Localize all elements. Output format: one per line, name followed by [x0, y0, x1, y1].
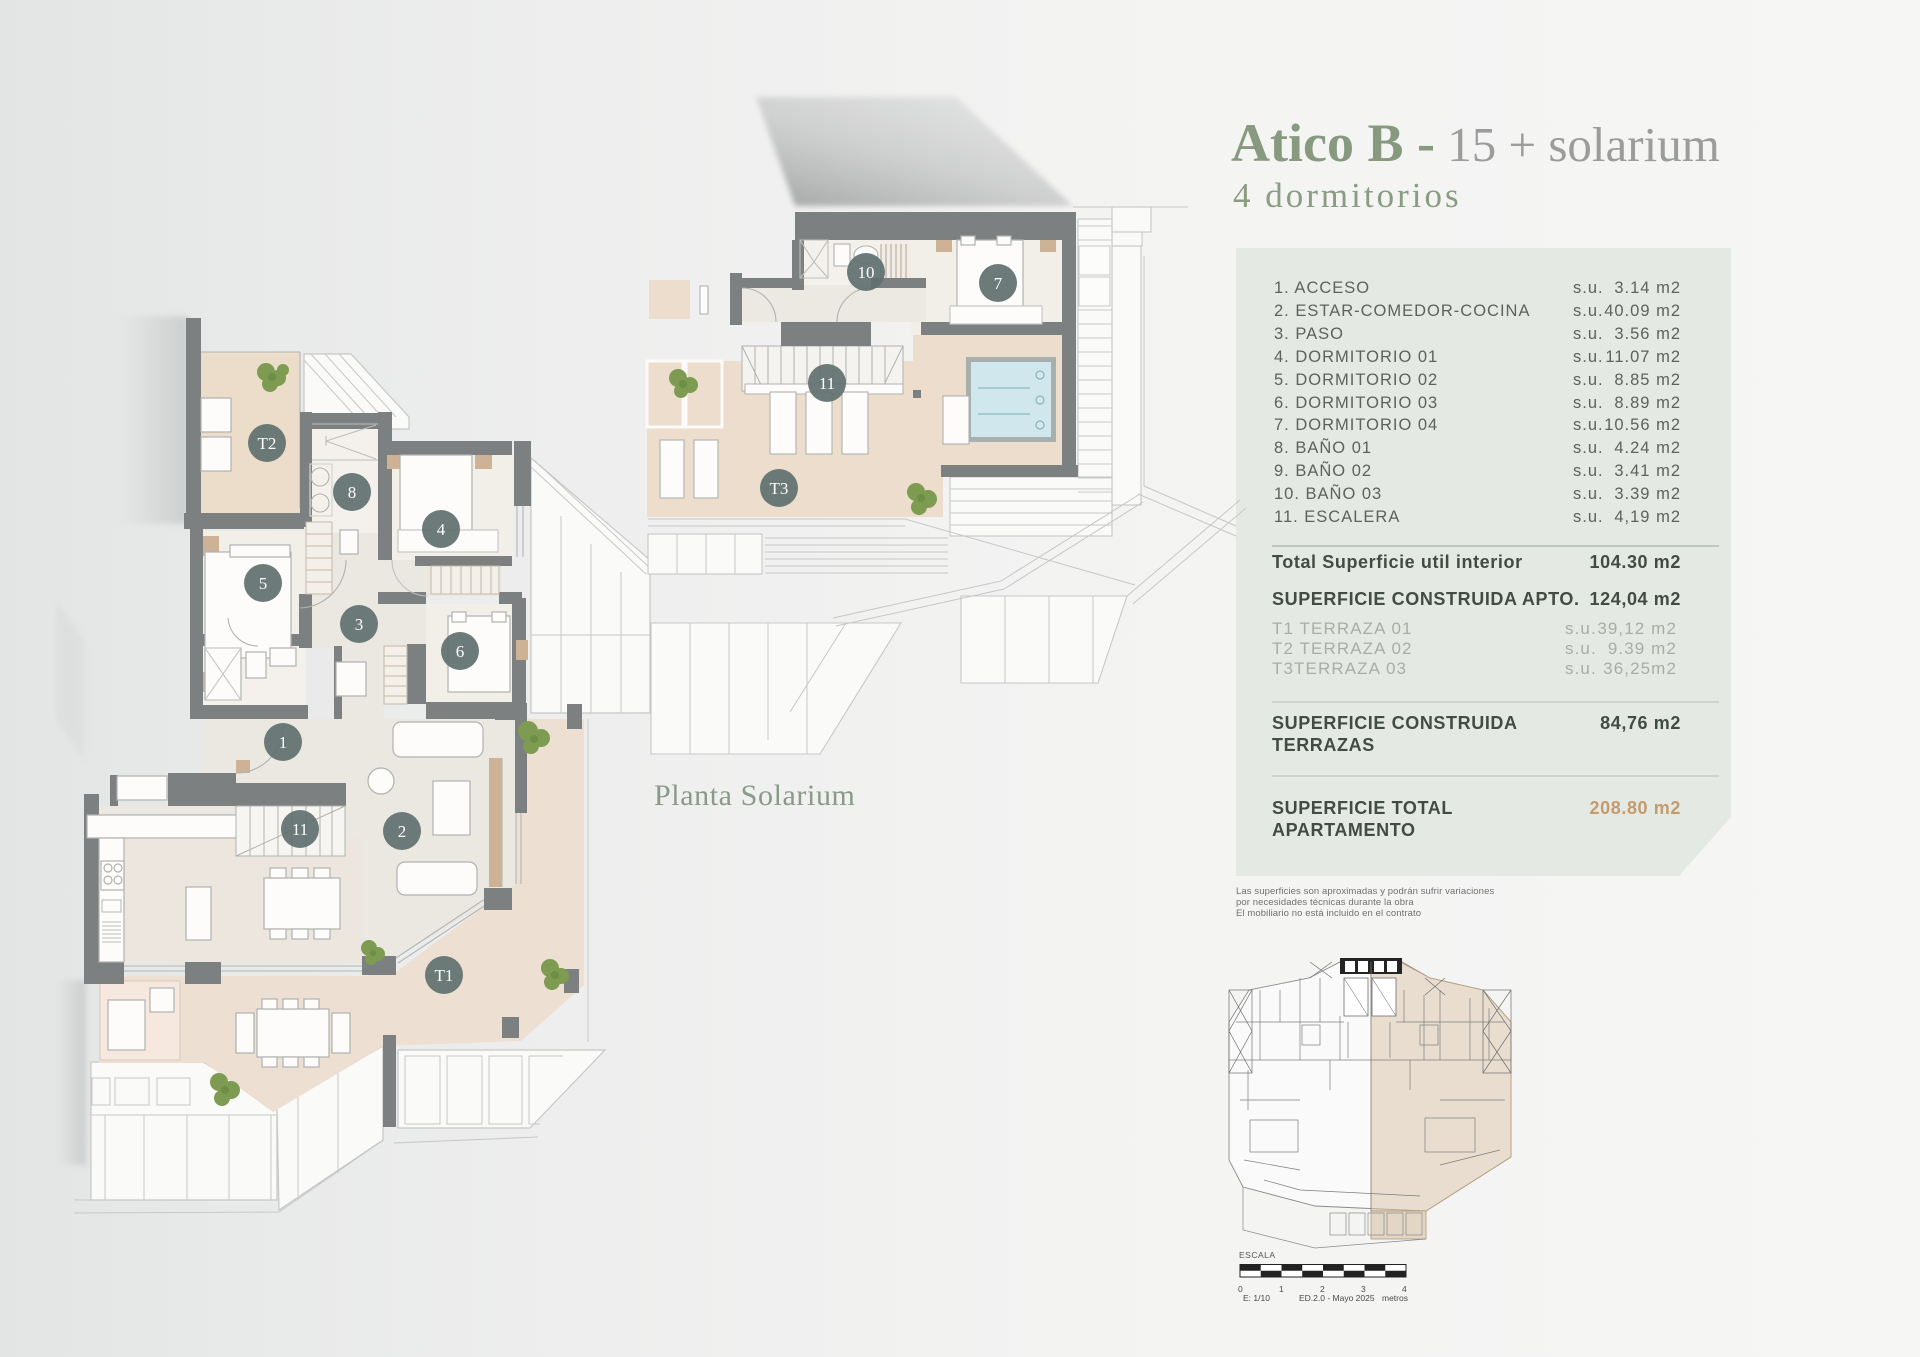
svg-text:11: 11	[292, 820, 308, 839]
svg-text:1: 1	[1279, 1284, 1284, 1294]
svg-text:8: 8	[348, 483, 357, 502]
svg-text:5: 5	[259, 574, 268, 593]
svg-text:4: 4	[437, 520, 446, 539]
svg-text:10: 10	[858, 263, 875, 282]
svg-text:11: 11	[819, 374, 835, 393]
svg-text:7: 7	[994, 274, 1003, 293]
svg-text:T3: T3	[770, 479, 789, 498]
svg-text:3: 3	[355, 615, 364, 634]
svg-text:2: 2	[398, 822, 407, 841]
svg-text:6: 6	[456, 642, 465, 661]
svg-text:E: 1/10: E: 1/10	[1243, 1293, 1270, 1303]
svg-text:T2: T2	[258, 434, 277, 453]
svg-text:T1: T1	[435, 966, 454, 985]
svg-text:ESCALA: ESCALA	[1239, 1250, 1276, 1260]
svg-text:metros: metros	[1382, 1293, 1408, 1303]
svg-text:ED.2.0 - Mayo 2025: ED.2.0 - Mayo 2025	[1299, 1293, 1375, 1303]
svg-text:1: 1	[279, 733, 288, 752]
